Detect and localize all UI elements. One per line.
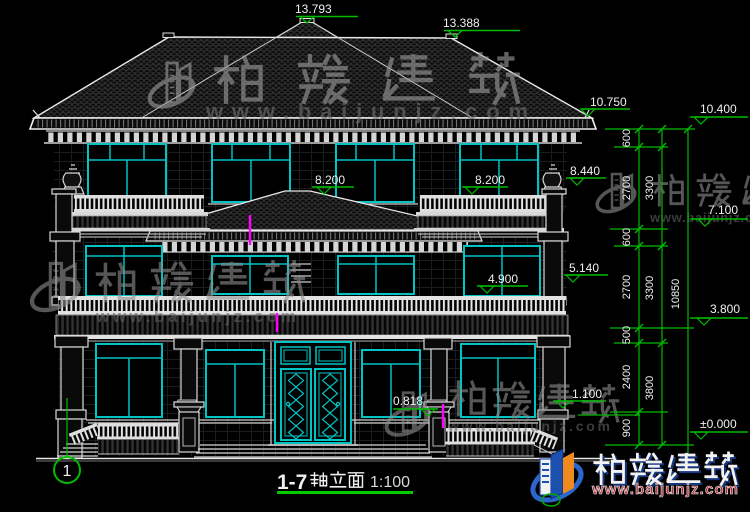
svg-text:8.440: 8.440 [570,164,600,178]
svg-text:500: 500 [621,326,633,344]
svg-text:10850: 10850 [670,279,682,310]
svg-text:0.818: 0.818 [393,394,423,408]
svg-text:13.793: 13.793 [295,2,332,16]
svg-text:±0.000: ±0.000 [700,417,737,431]
svg-text:2700: 2700 [621,275,633,299]
svg-text:1-7: 1-7 [277,471,307,494]
svg-text:10.750: 10.750 [590,95,627,109]
svg-text:7.100: 7.100 [708,203,738,217]
svg-text:1.100: 1.100 [572,387,602,401]
svg-text:3.800: 3.800 [710,302,740,316]
svg-text:5.140: 5.140 [569,261,599,275]
svg-text:600: 600 [621,228,633,246]
svg-text:13.388: 13.388 [443,16,480,30]
svg-text:600: 600 [621,129,633,147]
svg-text:1: 1 [63,463,72,480]
svg-text:8.200: 8.200 [315,173,345,187]
svg-text:10.400: 10.400 [700,102,737,116]
svg-text:900: 900 [621,419,633,437]
svg-text:4.900: 4.900 [488,272,518,286]
svg-text:2700: 2700 [621,176,633,200]
svg-text:8.200: 8.200 [475,173,505,187]
svg-text:3300: 3300 [644,276,656,300]
svg-text:3300: 3300 [644,176,656,200]
svg-text:2400: 2400 [621,365,633,389]
svg-text:www.baijunjz.com: www.baijunjz.com [591,481,738,498]
svg-text:3800: 3800 [644,376,656,400]
svg-text:1:100: 1:100 [370,474,410,491]
